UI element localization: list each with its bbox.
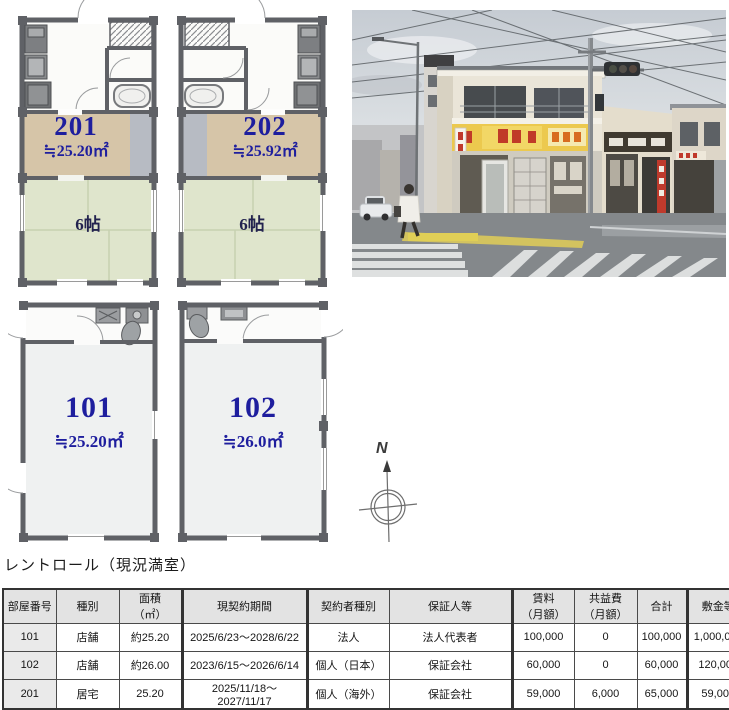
floorplan-unit-101: 101 ≒25.20㎡ [8,293,170,545]
compass: N [354,440,426,548]
compass-drawing [354,440,426,548]
unit-202-number: 202 [207,113,323,140]
rent-roll-table: 部屋番号 種別 面積 （㎡） 現契約期間 契約者種別 保証人等 賃料 （月額） … [2,588,729,710]
cell-rent: 100,000 [512,623,574,651]
cell-deposit: 1,000,000 [687,623,729,651]
unit-102-number: 102 [182,393,324,423]
cell-type: 店舗 [56,623,119,651]
cell-room: 201 [3,679,56,709]
table-row-201: 201 居宅 25.20 2025/11/18～2027/11/17 個人（海外… [3,679,729,709]
cell-common-fee: 0 [574,651,637,679]
cell-total: 100,000 [637,623,687,651]
col-contractor-type: 契約者種別 [307,589,389,623]
col-area: 面積 （㎡） [119,589,182,623]
col-contract-period: 現契約期間 [182,589,307,623]
cell-room: 101 [3,623,56,651]
property-flyer: 201 ≒25.20㎡ 6帖 [0,0,729,710]
unit-101-area: ≒25.20㎡ [23,433,155,450]
cell-period: 2023/6/15～2026/6/14 [182,651,307,679]
cell-area: 約25.20 [119,623,182,651]
unit-202-area: ≒25.92㎡ [207,144,323,160]
unit-201-room-size: 6帖 [22,216,154,233]
cell-contractor: 個人（海外） [307,679,389,709]
cell-deposit: 59,000 [687,679,729,709]
building-photo-drawing [352,10,726,277]
col-type: 種別 [56,589,119,623]
cell-total: 60,000 [637,651,687,679]
floorplan-unit-202: 202 ≒25.92㎡ 6帖 [173,0,331,288]
cell-rent: 60,000 [512,651,574,679]
col-rent: 賃料 （月額） [512,589,574,623]
rent-roll-title: レントロール（現況満室） [4,554,196,575]
col-guarantor: 保証人等 [389,589,512,623]
cell-guarantor: 保証会社 [389,651,512,679]
table-row-101: 101 店舗 約25.20 2025/6/23～2028/6/22 法人 法人代… [3,623,729,651]
cell-period: 2025/11/18～2027/11/17 [182,679,307,709]
building-photo [352,10,726,277]
cell-area: 25.20 [119,679,182,709]
col-common-fee: 共益費 （月額） [574,589,637,623]
unit-202-room-size: 6帖 [181,216,323,233]
col-total: 合計 [637,589,687,623]
cell-type: 店舗 [56,651,119,679]
cell-common-fee: 0 [574,623,637,651]
cell-contractor: 法人 [307,623,389,651]
unit-201-area: ≒25.20㎡ [22,144,130,160]
floorplan-unit-201: 201 ≒25.20㎡ 6帖 [14,0,164,288]
cell-contractor: 個人（日本） [307,651,389,679]
cell-guarantor: 法人代表者 [389,623,512,651]
rent-roll-table-container: 部屋番号 種別 面積 （㎡） 現契約期間 契約者種別 保証人等 賃料 （月額） … [2,588,729,710]
col-room-number: 部屋番号 [3,589,56,623]
cell-common-fee: 6,000 [574,679,637,709]
cell-guarantor: 保証会社 [389,679,512,709]
floorplan-unit-102: 102 ≒26.0㎡ [173,293,343,545]
cell-deposit: 120,000 [687,651,729,679]
cell-rent: 59,000 [512,679,574,709]
col-deposit: 敷金等 [687,589,729,623]
unit-101-number: 101 [23,393,155,423]
cell-type: 居宅 [56,679,119,709]
cell-area: 約26.00 [119,651,182,679]
cell-total: 65,000 [637,679,687,709]
header-row: 部屋番号 種別 面積 （㎡） 現契約期間 契約者種別 保証人等 賃料 （月額） … [3,589,729,623]
table-row-102: 102 店舗 約26.00 2023/6/15～2026/6/14 個人（日本）… [3,651,729,679]
unit-201-number: 201 [22,113,130,140]
unit-102-area: ≒26.0㎡ [182,433,324,450]
cell-period: 2025/6/23～2028/6/22 [182,623,307,651]
cell-room: 102 [3,651,56,679]
